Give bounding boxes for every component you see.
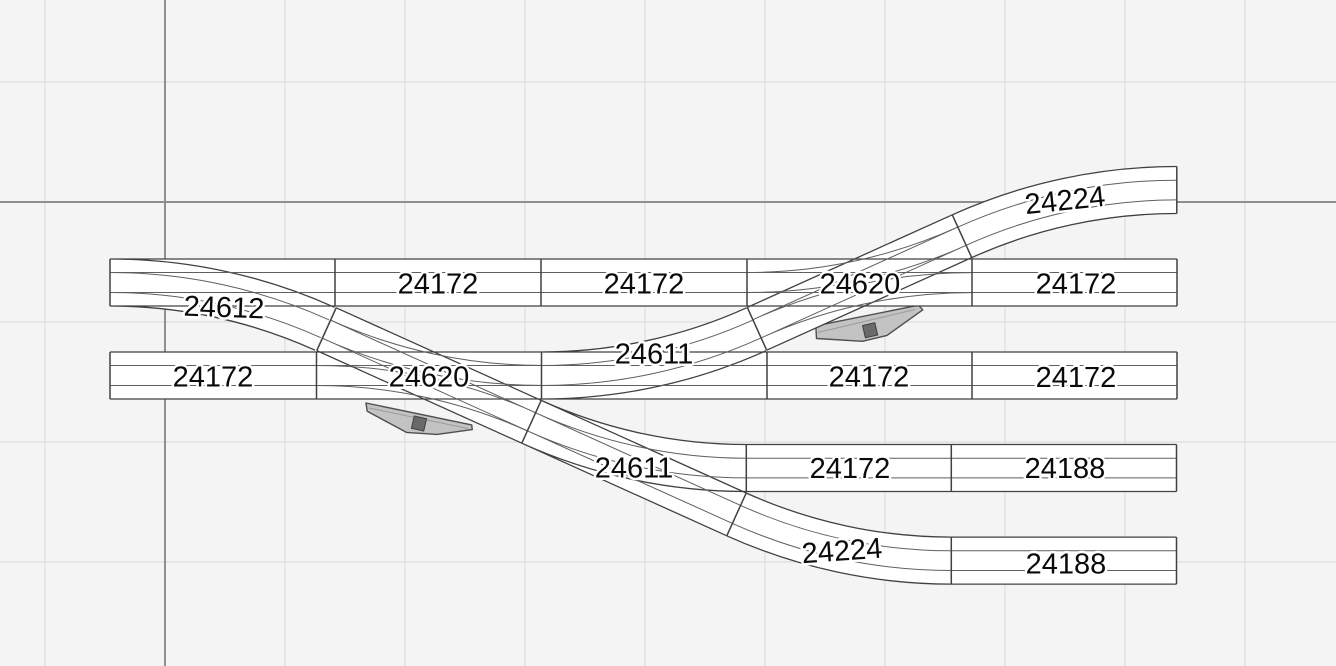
track-label-24224-bottom: 24224	[801, 533, 884, 571]
track-label-24172-r1b: 24172	[398, 269, 479, 301]
track-label-24172-r2b: 24172	[829, 362, 910, 394]
track-plan-canvas[interactable]: 24224 24172 24172 24620 24172 24612 2461…	[0, 0, 1336, 666]
switch-motor-actuator[interactable]	[863, 323, 878, 338]
track-label-24172-r2c: 24172	[1036, 362, 1117, 394]
track-label-24188-r4: 24188	[1026, 549, 1107, 581]
track-label-24620-upper: 24620	[820, 269, 901, 301]
track-label-24611-lower: 24611	[595, 453, 674, 485]
track-label-24172-r1c: 24172	[604, 269, 685, 301]
track-label-24620-lower: 24620	[389, 362, 470, 394]
track-label-24172-r2a: 24172	[173, 362, 254, 394]
track-label-24611-upper: 24611	[615, 339, 694, 371]
track-label-24172-r3: 24172	[810, 453, 891, 485]
track-label-24188-r3: 24188	[1025, 453, 1106, 485]
track-label-24172-r1d: 24172	[1036, 269, 1117, 301]
track-label-24612: 24612	[183, 291, 265, 326]
switch-motor-actuator[interactable]	[411, 416, 426, 431]
